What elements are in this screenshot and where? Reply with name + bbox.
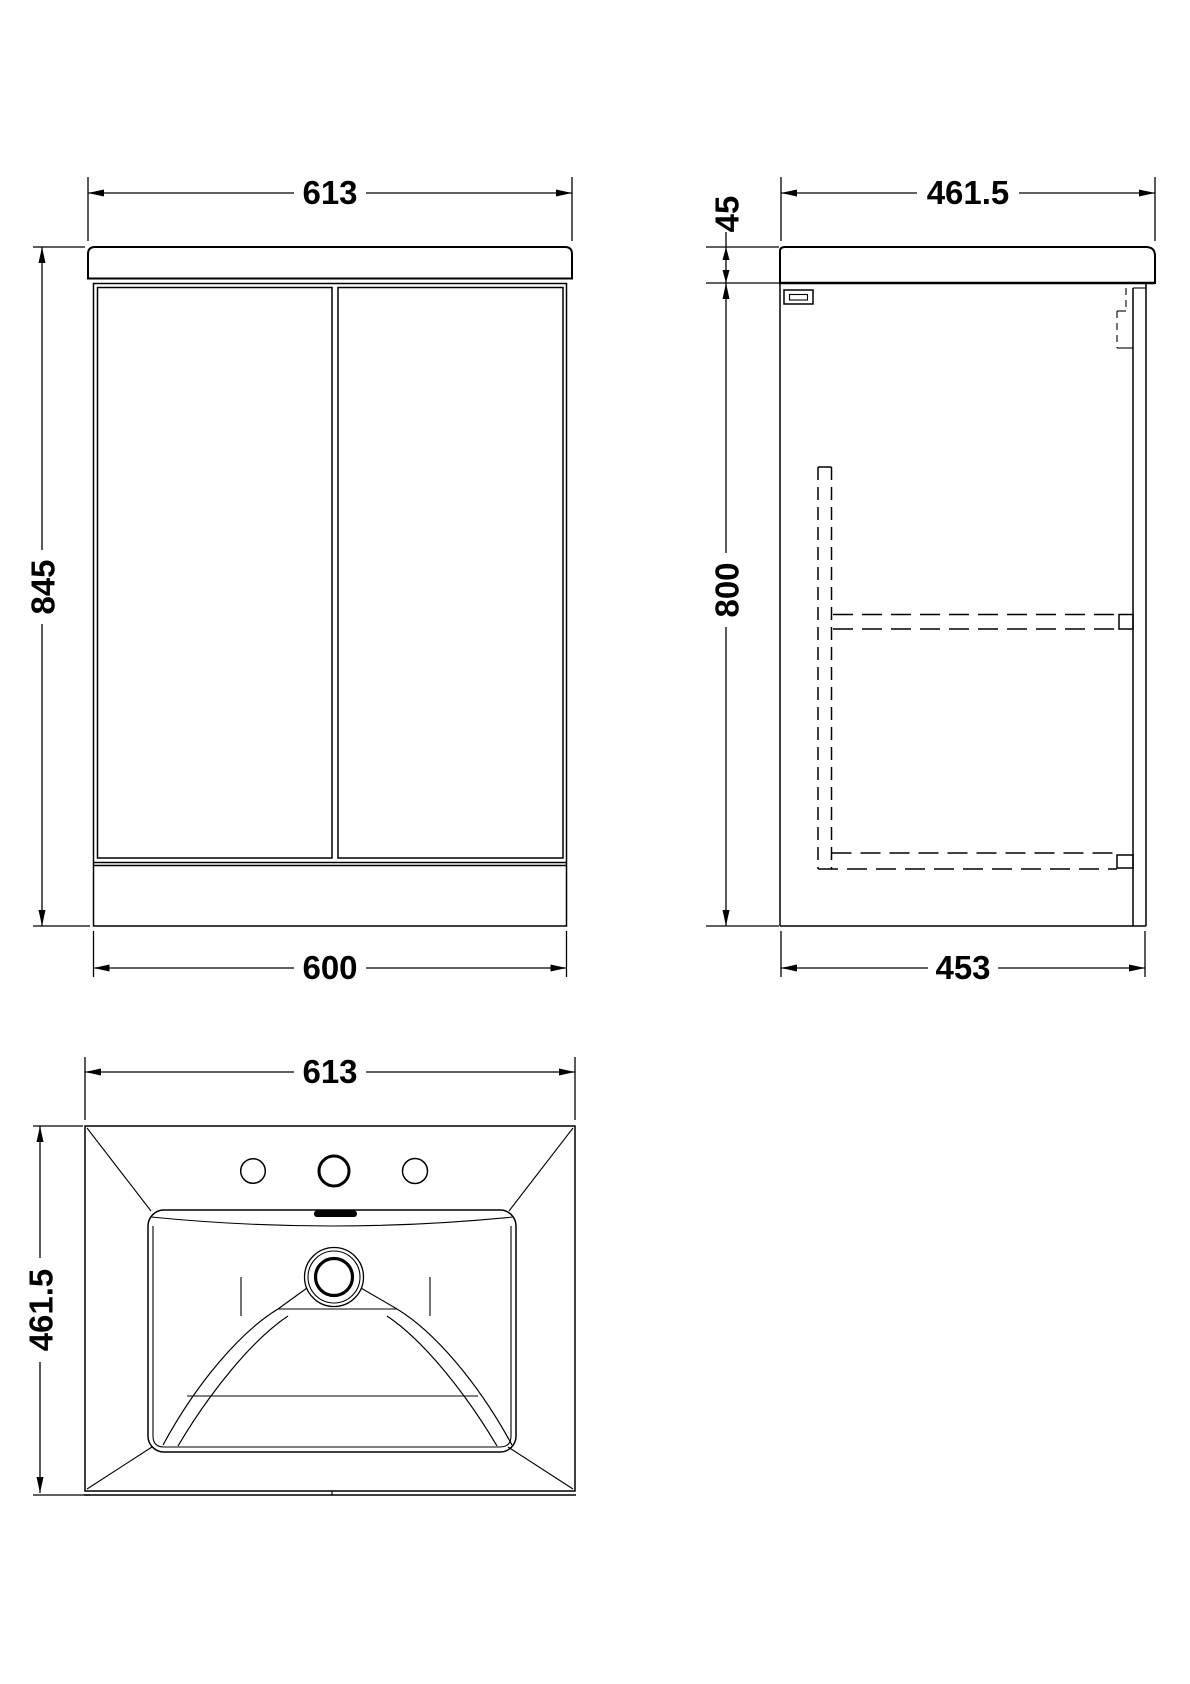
side-hidden-upright bbox=[818, 467, 832, 869]
bowl-line bbox=[278, 1288, 307, 1309]
tap-hole-left bbox=[241, 1159, 266, 1184]
bowl-curve bbox=[387, 1316, 497, 1446]
side-view: 461.5 45 800 453 bbox=[706, 174, 1155, 986]
arrowhead bbox=[723, 270, 730, 283]
arrowhead bbox=[88, 190, 104, 197]
overflow-slot bbox=[314, 1211, 357, 1218]
arrowhead bbox=[37, 1126, 44, 1142]
tap-hole-center bbox=[319, 1156, 349, 1186]
corner-slope bbox=[87, 1447, 152, 1489]
front-view: 613 845 600 bbox=[25, 174, 573, 986]
side-hinge-plate bbox=[784, 290, 813, 304]
arrowhead bbox=[39, 247, 46, 263]
arrowhead bbox=[551, 965, 567, 972]
arrowhead bbox=[723, 910, 730, 926]
technical-drawing-sheet: 613 845 600 bbox=[0, 0, 1190, 1684]
basin-width-dim: 613 bbox=[302, 1053, 357, 1090]
front-right-door bbox=[338, 288, 563, 859]
front-cabinet bbox=[94, 284, 567, 927]
basin-rim-sag-line bbox=[151, 1217, 513, 1226]
front-top-width-dim: 613 bbox=[302, 174, 357, 211]
side-top-depth-dim: 461.5 bbox=[927, 174, 1010, 211]
basin-rim bbox=[148, 1210, 516, 1452]
side-hidden-base bbox=[818, 853, 1133, 869]
arrowhead bbox=[556, 190, 572, 197]
drain-plug bbox=[316, 1259, 353, 1296]
arrowhead bbox=[39, 910, 46, 926]
waste-drain bbox=[305, 1248, 364, 1307]
basin-structure bbox=[84, 1126, 576, 1495]
front-dimensions: 613 845 600 bbox=[25, 174, 573, 986]
front-worktop bbox=[88, 247, 572, 279]
arrowhead bbox=[781, 965, 797, 972]
vanity-unit-drawing: 613 845 600 bbox=[0, 0, 1190, 1684]
shelf-end-cap bbox=[1119, 615, 1133, 630]
front-height-dim: 845 bbox=[25, 559, 62, 614]
bowl-curve bbox=[163, 1309, 278, 1445]
arrowhead bbox=[723, 283, 730, 299]
arrowhead bbox=[85, 1069, 101, 1076]
side-wall-bracket-hidden bbox=[1117, 288, 1133, 348]
arrowhead bbox=[94, 965, 110, 972]
basin-depth-dim: 461.5 bbox=[23, 1269, 60, 1352]
base-end-cap bbox=[1117, 855, 1133, 868]
side-structure bbox=[779, 247, 1155, 926]
arrowhead bbox=[1139, 190, 1155, 197]
corner-slope bbox=[87, 1128, 151, 1211]
side-cabinet-height-dim: 800 bbox=[709, 562, 746, 617]
front-bottom-width-dim: 600 bbox=[302, 949, 357, 986]
side-hidden-shelf bbox=[833, 615, 1133, 630]
front-structure bbox=[88, 247, 572, 926]
corner-slope bbox=[508, 1447, 573, 1489]
side-worktop-thickness-dim: 45 bbox=[709, 196, 746, 233]
arrowhead bbox=[559, 1069, 575, 1076]
bowl-curve bbox=[178, 1316, 288, 1446]
side-dimensions: 461.5 45 800 453 bbox=[706, 174, 1155, 986]
basin-plan-view: 613 461.5 bbox=[23, 1053, 577, 1495]
tap-hole-right bbox=[403, 1159, 428, 1184]
bowl-line bbox=[361, 1288, 397, 1309]
side-bottom-depth-dim: 453 bbox=[935, 949, 990, 986]
drain-outer-ring bbox=[305, 1248, 364, 1307]
arrowhead bbox=[1129, 965, 1145, 972]
side-worktop bbox=[780, 247, 1155, 283]
basin-dimensions: 613 461.5 bbox=[23, 1053, 576, 1495]
arrowhead bbox=[723, 247, 730, 260]
front-left-door bbox=[98, 288, 333, 859]
arrowhead bbox=[37, 1477, 44, 1493]
bowl-curve bbox=[397, 1309, 512, 1445]
side-hinge-plate-inner bbox=[790, 295, 808, 301]
arrowhead bbox=[781, 190, 797, 197]
corner-slope bbox=[509, 1128, 573, 1211]
